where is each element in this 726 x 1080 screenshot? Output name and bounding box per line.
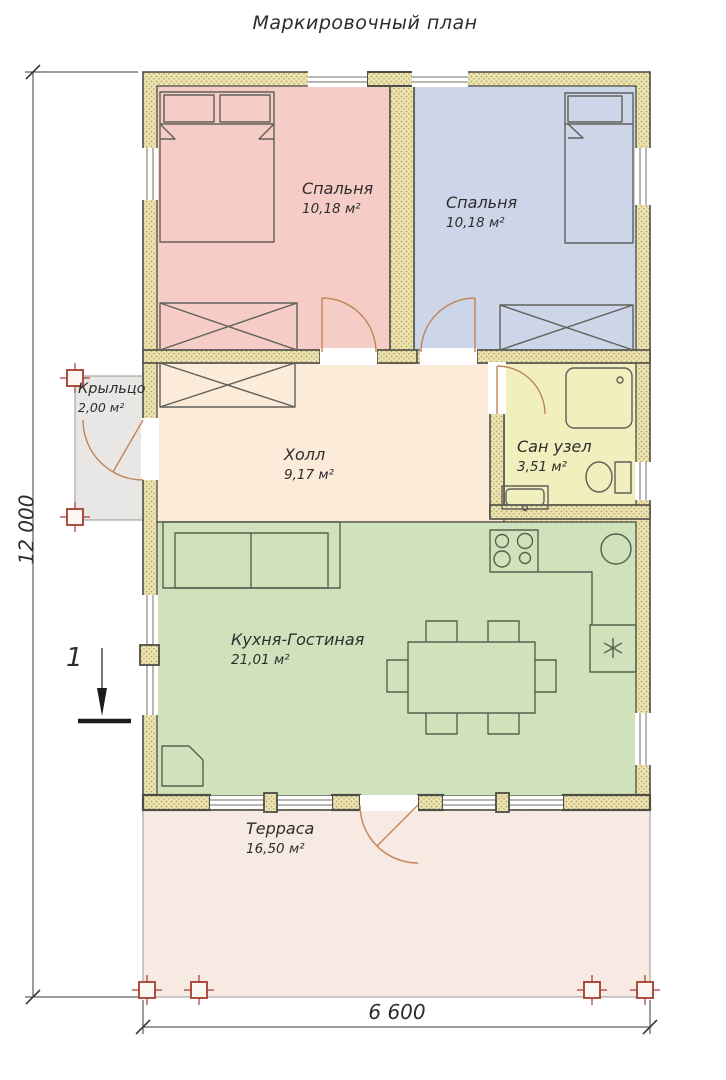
dimension-label-vertical: 12 000 bbox=[16, 480, 39, 580]
room-area: 16,50 м² bbox=[246, 842, 314, 858]
label-bedroom-right: Спальня 10,18 м² bbox=[446, 194, 517, 232]
room-bathroom bbox=[504, 363, 636, 505]
window-right-bedroom bbox=[635, 148, 651, 205]
room-name: Холл bbox=[284, 446, 334, 464]
label-terrace: Терраса 16,50 м² bbox=[246, 820, 314, 858]
floor-plan-drawing bbox=[0, 0, 726, 1080]
floor-plan-page: Маркировочный план Спальня 10,18 м² Спал… bbox=[0, 0, 726, 1080]
dimension-label-horizontal: 6 600 bbox=[368, 1001, 425, 1024]
room-area: 2,00 м² bbox=[78, 401, 146, 415]
dimension-vertical-12000 bbox=[25, 65, 138, 1004]
opening-terrace-door bbox=[360, 795, 418, 811]
room-area: 3,51 м² bbox=[517, 460, 592, 476]
window-left-bedroom bbox=[142, 148, 158, 200]
middle-wall-right bbox=[477, 350, 650, 363]
bottom-wall-pier-right bbox=[418, 795, 443, 810]
window-left-kitchen-2 bbox=[142, 665, 158, 715]
label-bedroom-left: Спальня 10,18 м² bbox=[302, 180, 373, 218]
room-area: 10,18 м² bbox=[302, 202, 373, 218]
window-top-right bbox=[412, 71, 468, 87]
label-kitchen-living: Кухня-Гостиная 21,01 м² bbox=[231, 631, 364, 669]
room-name: Сан узел bbox=[517, 438, 592, 456]
label-porch: Крыльцо 2,00 м² bbox=[78, 381, 146, 415]
room-kitchen-living bbox=[157, 522, 636, 796]
bathroom-bottom-wall bbox=[490, 505, 650, 519]
window-right-bathroom bbox=[635, 462, 651, 500]
opening-bedroom-right-door bbox=[420, 348, 477, 365]
room-name: Спальня bbox=[446, 194, 517, 212]
label-bathroom: Сан узел 3,51 м² bbox=[517, 438, 592, 476]
window-mullion-bottom-1 bbox=[264, 793, 277, 812]
room-name: Кухня-Гостиная bbox=[231, 631, 364, 649]
bottom-wall-corner-right bbox=[563, 795, 650, 810]
room-hall bbox=[157, 363, 504, 522]
room-name: Спальня bbox=[302, 180, 373, 198]
window-right-kitchen bbox=[635, 713, 651, 765]
top-wall-pier bbox=[367, 72, 414, 86]
window-mullion-left bbox=[140, 645, 159, 665]
room-area: 21,01 м² bbox=[231, 653, 364, 669]
page-title: Маркировочный план bbox=[252, 13, 477, 35]
bottom-wall-pier-left bbox=[332, 795, 360, 810]
middle-wall-pier bbox=[377, 350, 417, 363]
bedroom-divider-wall bbox=[390, 72, 414, 363]
bottom-wall-corner-left bbox=[143, 795, 210, 810]
window-left-kitchen-1 bbox=[142, 595, 158, 645]
room-name: Терраса bbox=[246, 820, 314, 838]
opening-porch-door bbox=[141, 418, 159, 480]
room-name: Крыльцо bbox=[78, 381, 146, 398]
dining-table bbox=[408, 642, 535, 713]
middle-wall-left bbox=[143, 350, 320, 363]
room-area: 9,17 м² bbox=[284, 468, 334, 484]
section-marker bbox=[78, 648, 131, 721]
room-area: 10,18 м² bbox=[446, 216, 517, 232]
window-mullion-bottom-2 bbox=[496, 793, 509, 812]
section-arrow bbox=[97, 688, 107, 716]
section-label: 1 bbox=[66, 644, 83, 674]
label-hall: Холл 9,17 м² bbox=[284, 446, 334, 484]
window-top-left bbox=[308, 71, 367, 87]
opening-bedroom-left-door bbox=[320, 348, 377, 365]
room-terrace bbox=[143, 810, 650, 997]
